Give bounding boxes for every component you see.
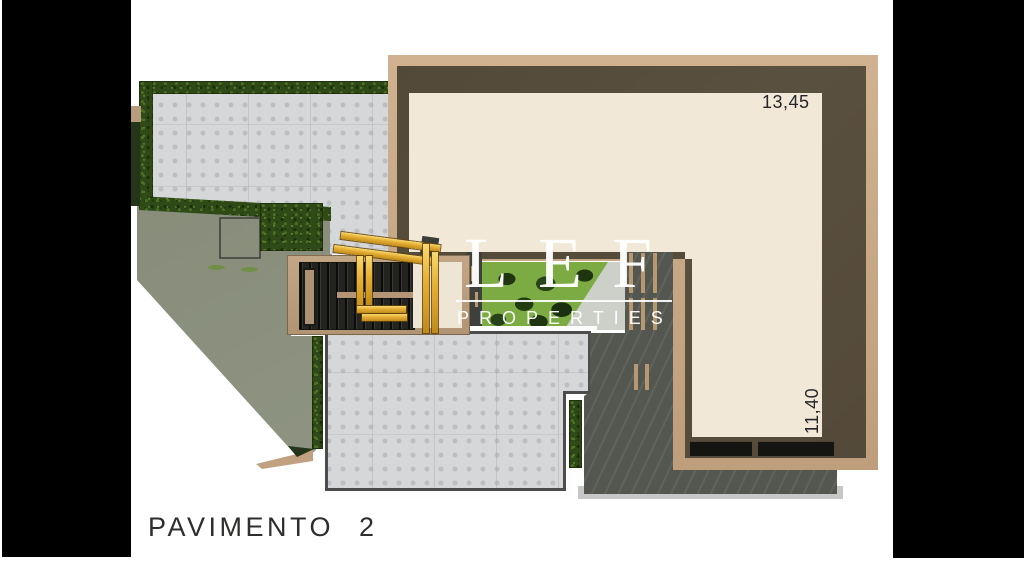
grass-tuft xyxy=(241,267,258,272)
floor-title: PAVIMENTO 2 xyxy=(148,511,378,543)
hedge-border-left xyxy=(139,81,153,205)
lef-gold-monogram xyxy=(357,256,363,313)
grass-tuft xyxy=(208,265,225,270)
hedge-strip-left xyxy=(312,336,323,449)
stair-handrail xyxy=(337,292,413,298)
louver-slot xyxy=(634,364,638,390)
louver-slot xyxy=(645,364,649,390)
hedge-planter-square xyxy=(260,203,323,251)
clerestory-window xyxy=(758,441,834,456)
hedge-border-top xyxy=(140,81,390,94)
dimension-label-top: 13,45 xyxy=(762,92,810,112)
letterbox-bar-right xyxy=(893,0,1024,558)
hedge-strip-right xyxy=(569,400,582,468)
hedge-shadow-strip xyxy=(131,122,140,206)
dimension-label-right: 11,40 xyxy=(802,376,822,446)
lef-gold-monogram xyxy=(432,252,438,333)
watermark-wordmark: LEF xyxy=(464,226,682,300)
skylight-outline xyxy=(219,217,261,259)
lef-gold-monogram xyxy=(357,306,406,313)
lef-gold-monogram xyxy=(366,256,372,305)
floorplan-canvas: 13,45 11,40 LEF PROPERTIES PAVIMENTO 2 xyxy=(0,0,1024,562)
clerestory-window xyxy=(690,441,752,456)
retaining-wall-cap xyxy=(131,106,141,122)
lef-gold-monogram xyxy=(362,314,407,321)
stair-door xyxy=(303,268,316,326)
letterbox-bar-left xyxy=(2,0,131,557)
watermark-divider xyxy=(456,300,672,302)
watermark-tagline: PROPERTIES xyxy=(457,308,673,328)
lef-gold-monogram xyxy=(423,244,429,333)
